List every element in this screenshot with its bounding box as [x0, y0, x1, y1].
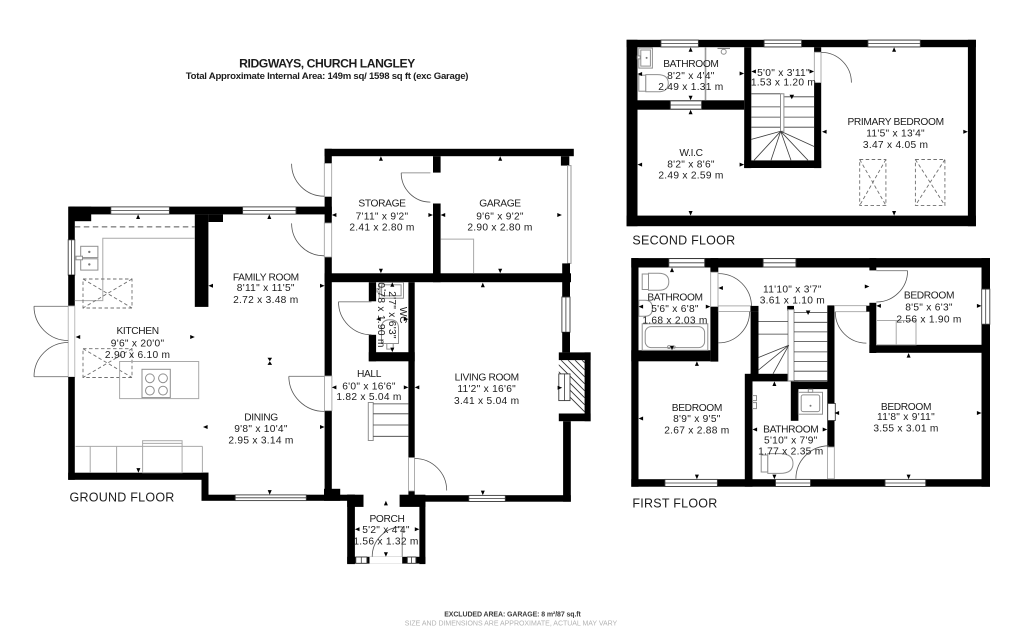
- svg-text:11'8" x 9'11": 11'8" x 9'11": [877, 412, 935, 423]
- svg-text:DINING: DINING: [244, 412, 278, 423]
- svg-text:8'11" x 11'5": 8'11" x 11'5": [237, 283, 295, 294]
- svg-text:7'11" x 9'2": 7'11" x 9'2": [356, 212, 409, 223]
- svg-text:5'2" x 4'4": 5'2" x 4'4": [362, 525, 410, 536]
- svg-text:1.53 x 1.20 m: 1.53 x 1.20 m: [751, 77, 816, 88]
- svg-text:1.77 x 2.35 m: 1.77 x 2.35 m: [758, 447, 823, 458]
- svg-text:11'5" x 13'4": 11'5" x 13'4": [866, 129, 925, 140]
- svg-text:SECOND FLOOR: SECOND FLOOR: [632, 233, 735, 247]
- svg-text:2.95 x 3.14 m: 2.95 x 3.14 m: [228, 435, 293, 446]
- svg-text:2'7" x 6'3": 2'7" x 6'3": [386, 291, 397, 339]
- svg-text:11'2" x 16'6": 11'2" x 16'6": [457, 384, 516, 395]
- svg-text:2.90 x 6.10 m: 2.90 x 6.10 m: [105, 350, 170, 361]
- svg-text:3.47 x 4.05 m: 3.47 x 4.05 m: [863, 140, 928, 151]
- svg-text:PRIMARY BEDROOM: PRIMARY BEDROOM: [847, 117, 943, 128]
- svg-text:2.67 x 2.88 m: 2.67 x 2.88 m: [664, 425, 729, 436]
- svg-text:2.72 x 3.48 m: 2.72 x 3.48 m: [233, 295, 298, 306]
- svg-text:9'6" x 20'0": 9'6" x 20'0": [111, 338, 165, 349]
- svg-text:GROUND FLOOR: GROUND FLOOR: [70, 490, 175, 504]
- svg-text:FIRST FLOOR: FIRST FLOOR: [632, 496, 717, 510]
- svg-text:6'0" x 16'6": 6'0" x 16'6": [342, 381, 396, 392]
- svg-text:2.56 x 1.90 m: 2.56 x 1.90 m: [896, 315, 961, 326]
- svg-text:5'6" x 6'8": 5'6" x 6'8": [651, 304, 699, 315]
- svg-text:EXCLUDED AREA: GARAGE: 8 m²/87: EXCLUDED AREA: GARAGE: 8 m²/87 sq.ft: [444, 612, 581, 619]
- svg-text:BATHROOM: BATHROOM: [647, 293, 702, 304]
- svg-text:WC: WC: [397, 307, 408, 323]
- svg-text:HALL: HALL: [357, 369, 382, 380]
- svg-text:3.55 x 3.01 m: 3.55 x 3.01 m: [873, 424, 938, 435]
- svg-text:GARAGE: GARAGE: [479, 198, 521, 209]
- svg-text:PORCH: PORCH: [369, 514, 404, 525]
- svg-text:9'6" x 9'2": 9'6" x 9'2": [476, 212, 524, 223]
- svg-text:11'10" x 3'7": 11'10" x 3'7": [763, 284, 822, 295]
- svg-text:1.68 x 2.03 m: 1.68 x 2.03 m: [642, 315, 707, 326]
- svg-text:STORAGE: STORAGE: [358, 198, 406, 209]
- svg-text:1.56 x 1.32 m: 1.56 x 1.32 m: [353, 537, 418, 548]
- svg-text:5'10" x 7'9": 5'10" x 7'9": [764, 436, 818, 447]
- svg-text:W.I.C: W.I.C: [679, 148, 702, 159]
- svg-text:SIZE AND DIMENSIONS ARE APPROX: SIZE AND DIMENSIONS ARE APPROXIMATE, ACT…: [405, 620, 618, 627]
- svg-text:BATHROOM: BATHROOM: [663, 59, 718, 70]
- svg-text:8'2" x 8'6": 8'2" x 8'6": [667, 160, 715, 171]
- svg-text:8'9" x 9'5": 8'9" x 9'5": [673, 414, 721, 425]
- svg-text:3.61 x 1.10 m: 3.61 x 1.10 m: [760, 296, 825, 307]
- svg-text:Total Approximate Internal Are: Total Approximate Internal Area: 149m sq…: [186, 71, 469, 82]
- svg-text:BEDROOM: BEDROOM: [904, 290, 954, 301]
- svg-text:LIVING ROOM: LIVING ROOM: [455, 372, 519, 383]
- svg-text:2.49 x 1.31 m: 2.49 x 1.31 m: [658, 82, 723, 93]
- svg-text:3.41 x 5.04 m: 3.41 x 5.04 m: [454, 396, 519, 407]
- svg-text:1.82 x 5.04 m: 1.82 x 5.04 m: [336, 392, 401, 403]
- svg-text:KITCHEN: KITCHEN: [116, 326, 158, 337]
- svg-text:9'8" x 10'4": 9'8" x 10'4": [234, 424, 288, 435]
- svg-text:0.78 x 1.90 m: 0.78 x 1.90 m: [375, 282, 386, 347]
- svg-text:8'2" x 4'4": 8'2" x 4'4": [667, 71, 715, 82]
- svg-text:2.90 x 2.80 m: 2.90 x 2.80 m: [467, 222, 532, 233]
- svg-text:2.41 x 2.80 m: 2.41 x 2.80 m: [349, 222, 414, 233]
- svg-text:8'5" x 6'3": 8'5" x 6'3": [905, 303, 953, 314]
- svg-text:RIDGWAYS, CHURCH LANGLEY: RIDGWAYS, CHURCH LANGLEY: [239, 57, 415, 71]
- svg-text:BATHROOM: BATHROOM: [763, 424, 818, 435]
- svg-text:BEDROOM: BEDROOM: [672, 403, 722, 414]
- svg-text:2.49 x 2.59 m: 2.49 x 2.59 m: [658, 171, 723, 182]
- svg-text:FAMILY ROOM: FAMILY ROOM: [233, 272, 299, 283]
